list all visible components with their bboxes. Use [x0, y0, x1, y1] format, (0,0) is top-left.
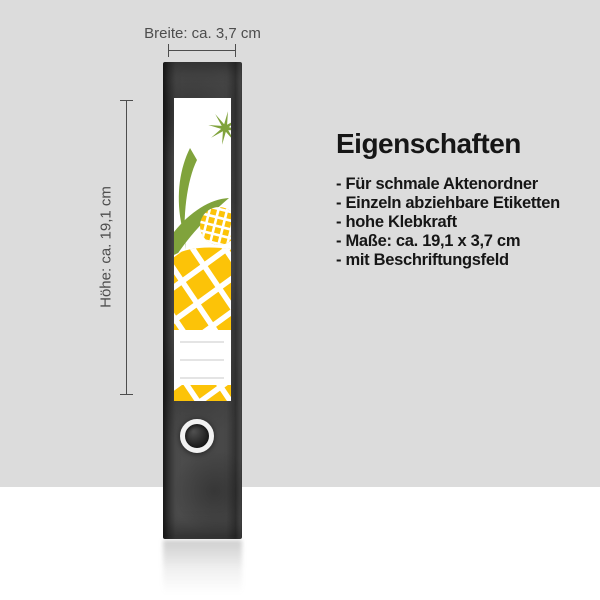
features-list: - Für schmale Aktenordner - Einzeln abzi… [336, 175, 560, 270]
height-dimension-line [126, 100, 127, 395]
feature-item: - Für schmale Aktenordner [336, 175, 560, 194]
width-dimension-line [168, 50, 236, 51]
width-dimension-label: Breite: ca. 3,7 cm [120, 25, 285, 42]
height-dimension-label: Höhe: ca. 19,1 cm [98, 186, 115, 308]
writing-field [174, 330, 231, 385]
binder-spine [163, 62, 242, 539]
feature-item: - hohe Klebkraft [336, 213, 560, 232]
pineapple-illustration [174, 98, 231, 401]
features-title: Eigenschaften [336, 128, 560, 160]
floor-background [0, 487, 600, 600]
height-dimension-tick-bottom [120, 394, 133, 395]
spine-label-sticker [174, 98, 231, 401]
height-dimension-tick-top [120, 100, 133, 101]
width-dimension-tick-right [235, 44, 236, 57]
feature-item: - Einzeln abziehbare Etiketten [336, 194, 560, 213]
width-dimension-tick-left [168, 44, 169, 57]
product-image-stage: Breite: ca. 3,7 cm Höhe: ca. 19,1 cm [0, 0, 600, 600]
feature-item: - Maße: ca. 19,1 x 3,7 cm [336, 232, 560, 251]
binder-finger-ring [180, 419, 214, 453]
pineapple-crown-star-icon [205, 108, 231, 147]
feature-item: - mit Beschriftungsfeld [336, 251, 560, 270]
spine-reflection [163, 540, 242, 594]
features-block: Eigenschaften - Für schmale Aktenordner … [336, 128, 560, 270]
